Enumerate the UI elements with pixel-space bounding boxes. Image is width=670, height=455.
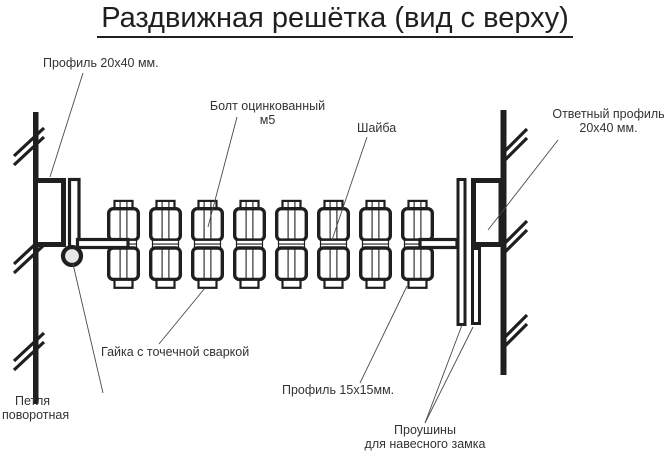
label-counter-profile-line2: 20x40 мм. [547,121,670,135]
diagram-canvas: Раздвижная решётка (вид с верху) [0,0,670,455]
rail-bar-right [420,240,457,248]
padlock-lug-left [458,180,465,325]
label-nut: Гайка с точечной сваркой [101,345,249,359]
scissor-joint [361,201,391,288]
label-bolt-line1: Болт оцинкованный [205,99,330,113]
label-profile-20x40: Профиль 20x40 мм. [43,56,159,70]
label-counter-profile-line1: Ответный профиль [547,107,670,121]
label-bolt-line2: м5 [205,113,330,127]
right-wall [501,110,528,375]
pivot-hinge [63,247,81,265]
label-lugs-line1: Проушины [353,423,497,437]
hinge-plate [70,180,80,248]
rail-bar-left [78,240,129,248]
scissor-joint [193,201,223,288]
leader-nut [159,288,205,344]
label-lugs-line2: для навесного замка [353,437,497,451]
label-bolt: Болт оцинкованный м5 [205,99,330,127]
scissor-joints [109,201,433,288]
label-counter-profile: Ответный профиль 20x40 мм. [547,107,670,135]
label-profile-15x15: Профиль 15x15мм. [282,383,394,397]
wall-hatch [14,128,44,370]
label-hinge-line2: поворотная [2,408,69,422]
leader-lug-left [425,325,462,423]
counter-profile-20x40 [474,181,502,245]
leader-lug-right [425,327,473,423]
leader-profile-1515 [360,286,407,383]
scissor-joint [235,201,265,288]
label-hinge-line1: Петля [15,394,50,408]
leader-hinge [73,264,103,393]
scissor-joint [319,201,349,288]
left-wall [14,112,44,404]
scissor-joint [277,201,307,288]
leader-profile-2040 [50,73,83,177]
label-lugs: Проушины для навесного замка [353,423,497,451]
padlock-lug-right [473,249,480,324]
scissor-joint [151,201,181,288]
label-washer: Шайба [357,121,396,135]
wall-hatch [504,129,527,347]
profile-20x40 [36,181,64,245]
